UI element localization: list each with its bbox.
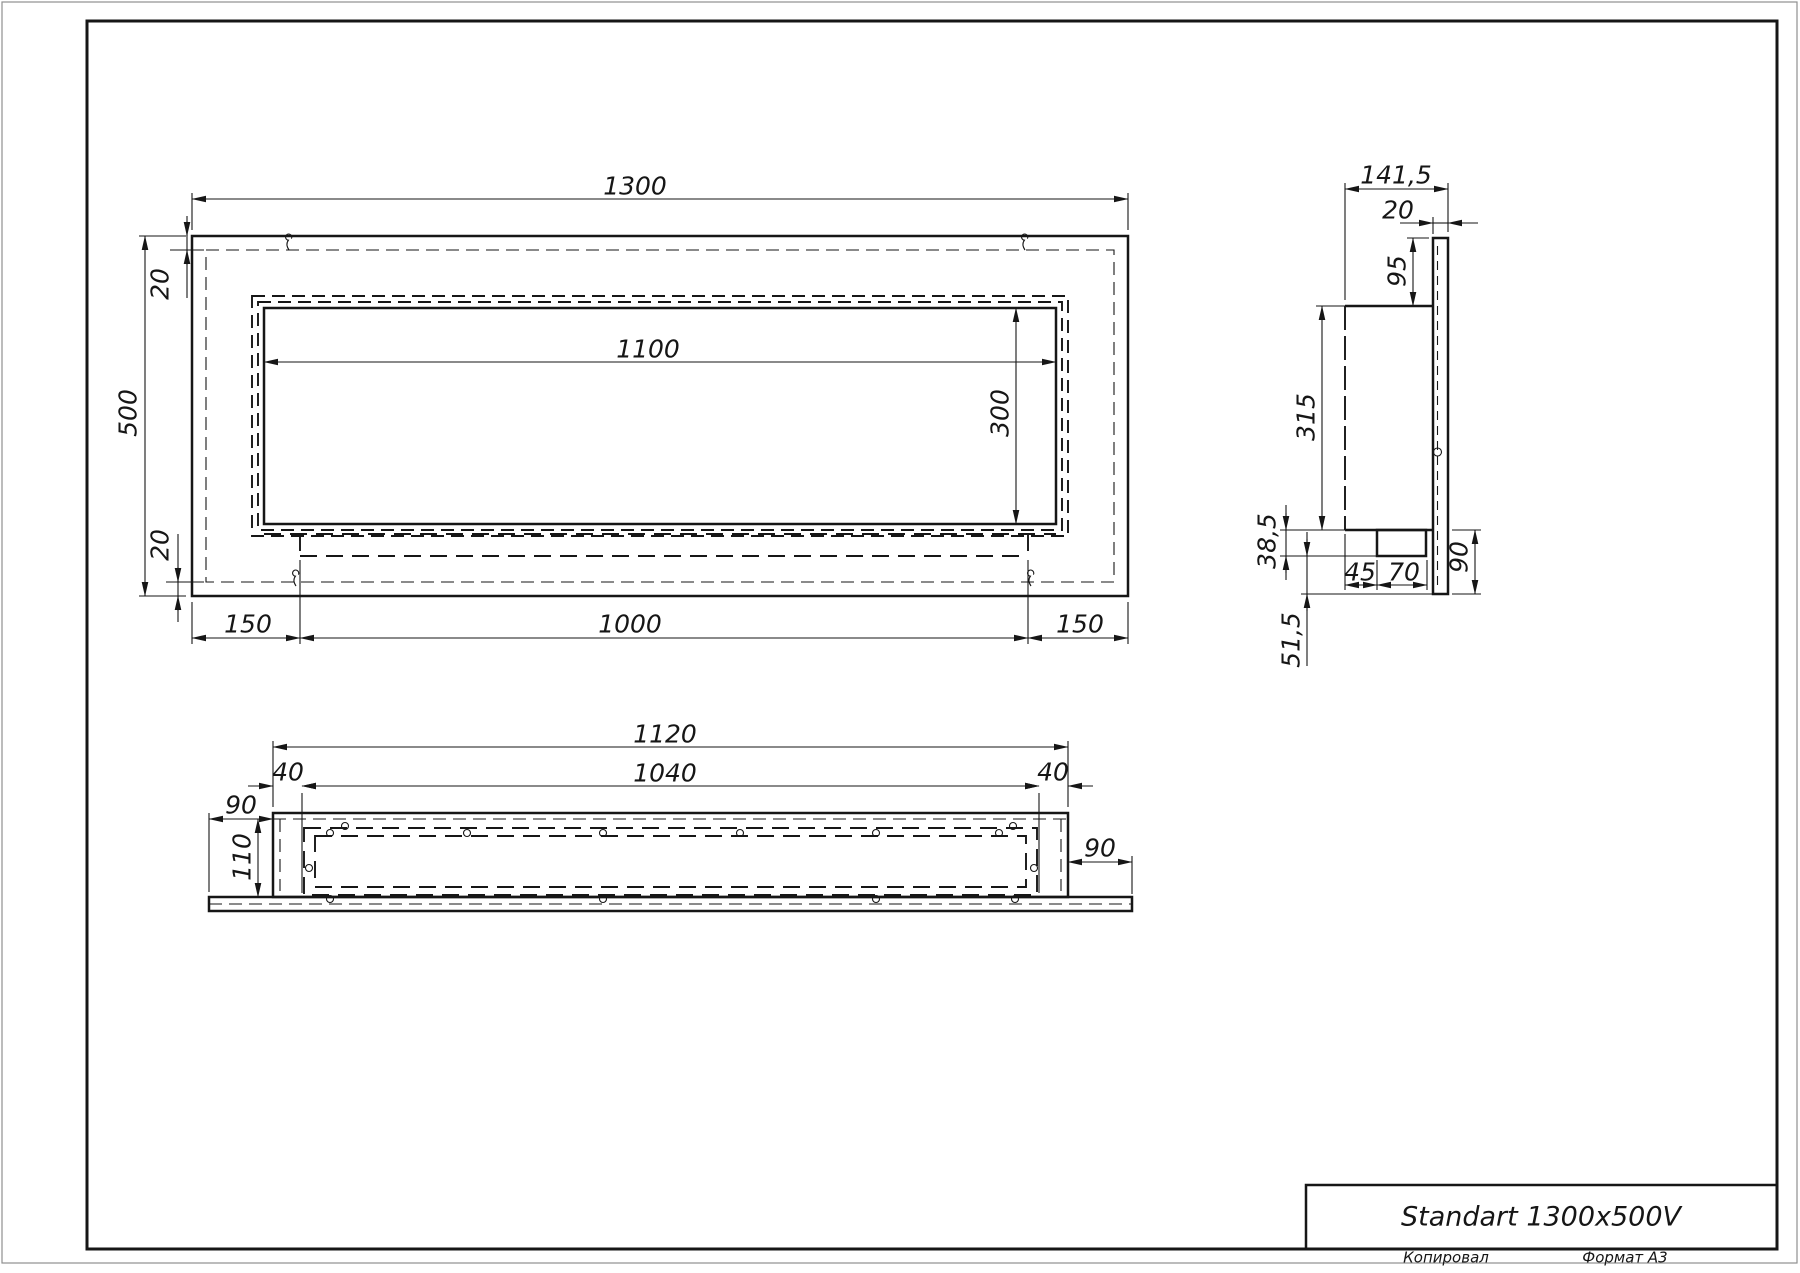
dim-front-left-margin: 150 [224, 612, 272, 637]
dim-side-overall-depth: 141,5 [1360, 163, 1432, 188]
drawing-sheet: 1300 20 500 20 1100 300 150 1000 150 141… [0, 0, 1800, 1273]
dim-side-tray-depth: 70 [1388, 560, 1420, 585]
dim-bottom-left-inset: 40 [272, 760, 304, 785]
dim-front-opening-width: 1100 [616, 337, 680, 362]
dim-bottom-body-depth: 110 [230, 833, 255, 881]
front-view [139, 193, 1128, 644]
dim-side-top-offset: 95 [1385, 255, 1410, 287]
dim-side-tray-setback: 45 [1344, 560, 1376, 585]
copied-label: Копировал [1403, 1251, 1489, 1266]
dim-front-opening-height: 300 [988, 389, 1013, 437]
dim-front-overall-height: 500 [116, 389, 141, 437]
dim-side-lower-offset: 51,5 [1279, 612, 1304, 668]
format-label: Формат А3 [1582, 1251, 1667, 1266]
dim-bottom-body-width: 1120 [633, 722, 697, 747]
dim-side-tray-height: 38,5 [1255, 513, 1280, 569]
dim-bottom-right-inset: 40 [1037, 760, 1069, 785]
screw-holes [306, 823, 1038, 903]
dim-bottom-inner-width: 1040 [633, 761, 697, 786]
dim-front-top-inset: 20 [148, 268, 173, 300]
drawing-title: Standart 1300x500V [1401, 1204, 1681, 1231]
dim-front-bottom-inset: 20 [148, 529, 173, 561]
dim-front-right-margin: 150 [1056, 612, 1104, 637]
dim-side-body-height: 315 [1294, 393, 1319, 441]
drawing-frame [87, 21, 1777, 1249]
dim-side-panel-thickness: 20 [1382, 198, 1414, 223]
dim-front-overall-width: 1300 [603, 174, 667, 199]
dim-bottom-left-flange: 90 [225, 793, 257, 818]
front-view-dimensions [139, 193, 1128, 644]
dim-side-panel-overhang: 90 [1447, 541, 1472, 573]
dim-front-firebox-width: 1000 [598, 612, 662, 637]
dim-bottom-right-flange: 90 [1084, 836, 1116, 861]
